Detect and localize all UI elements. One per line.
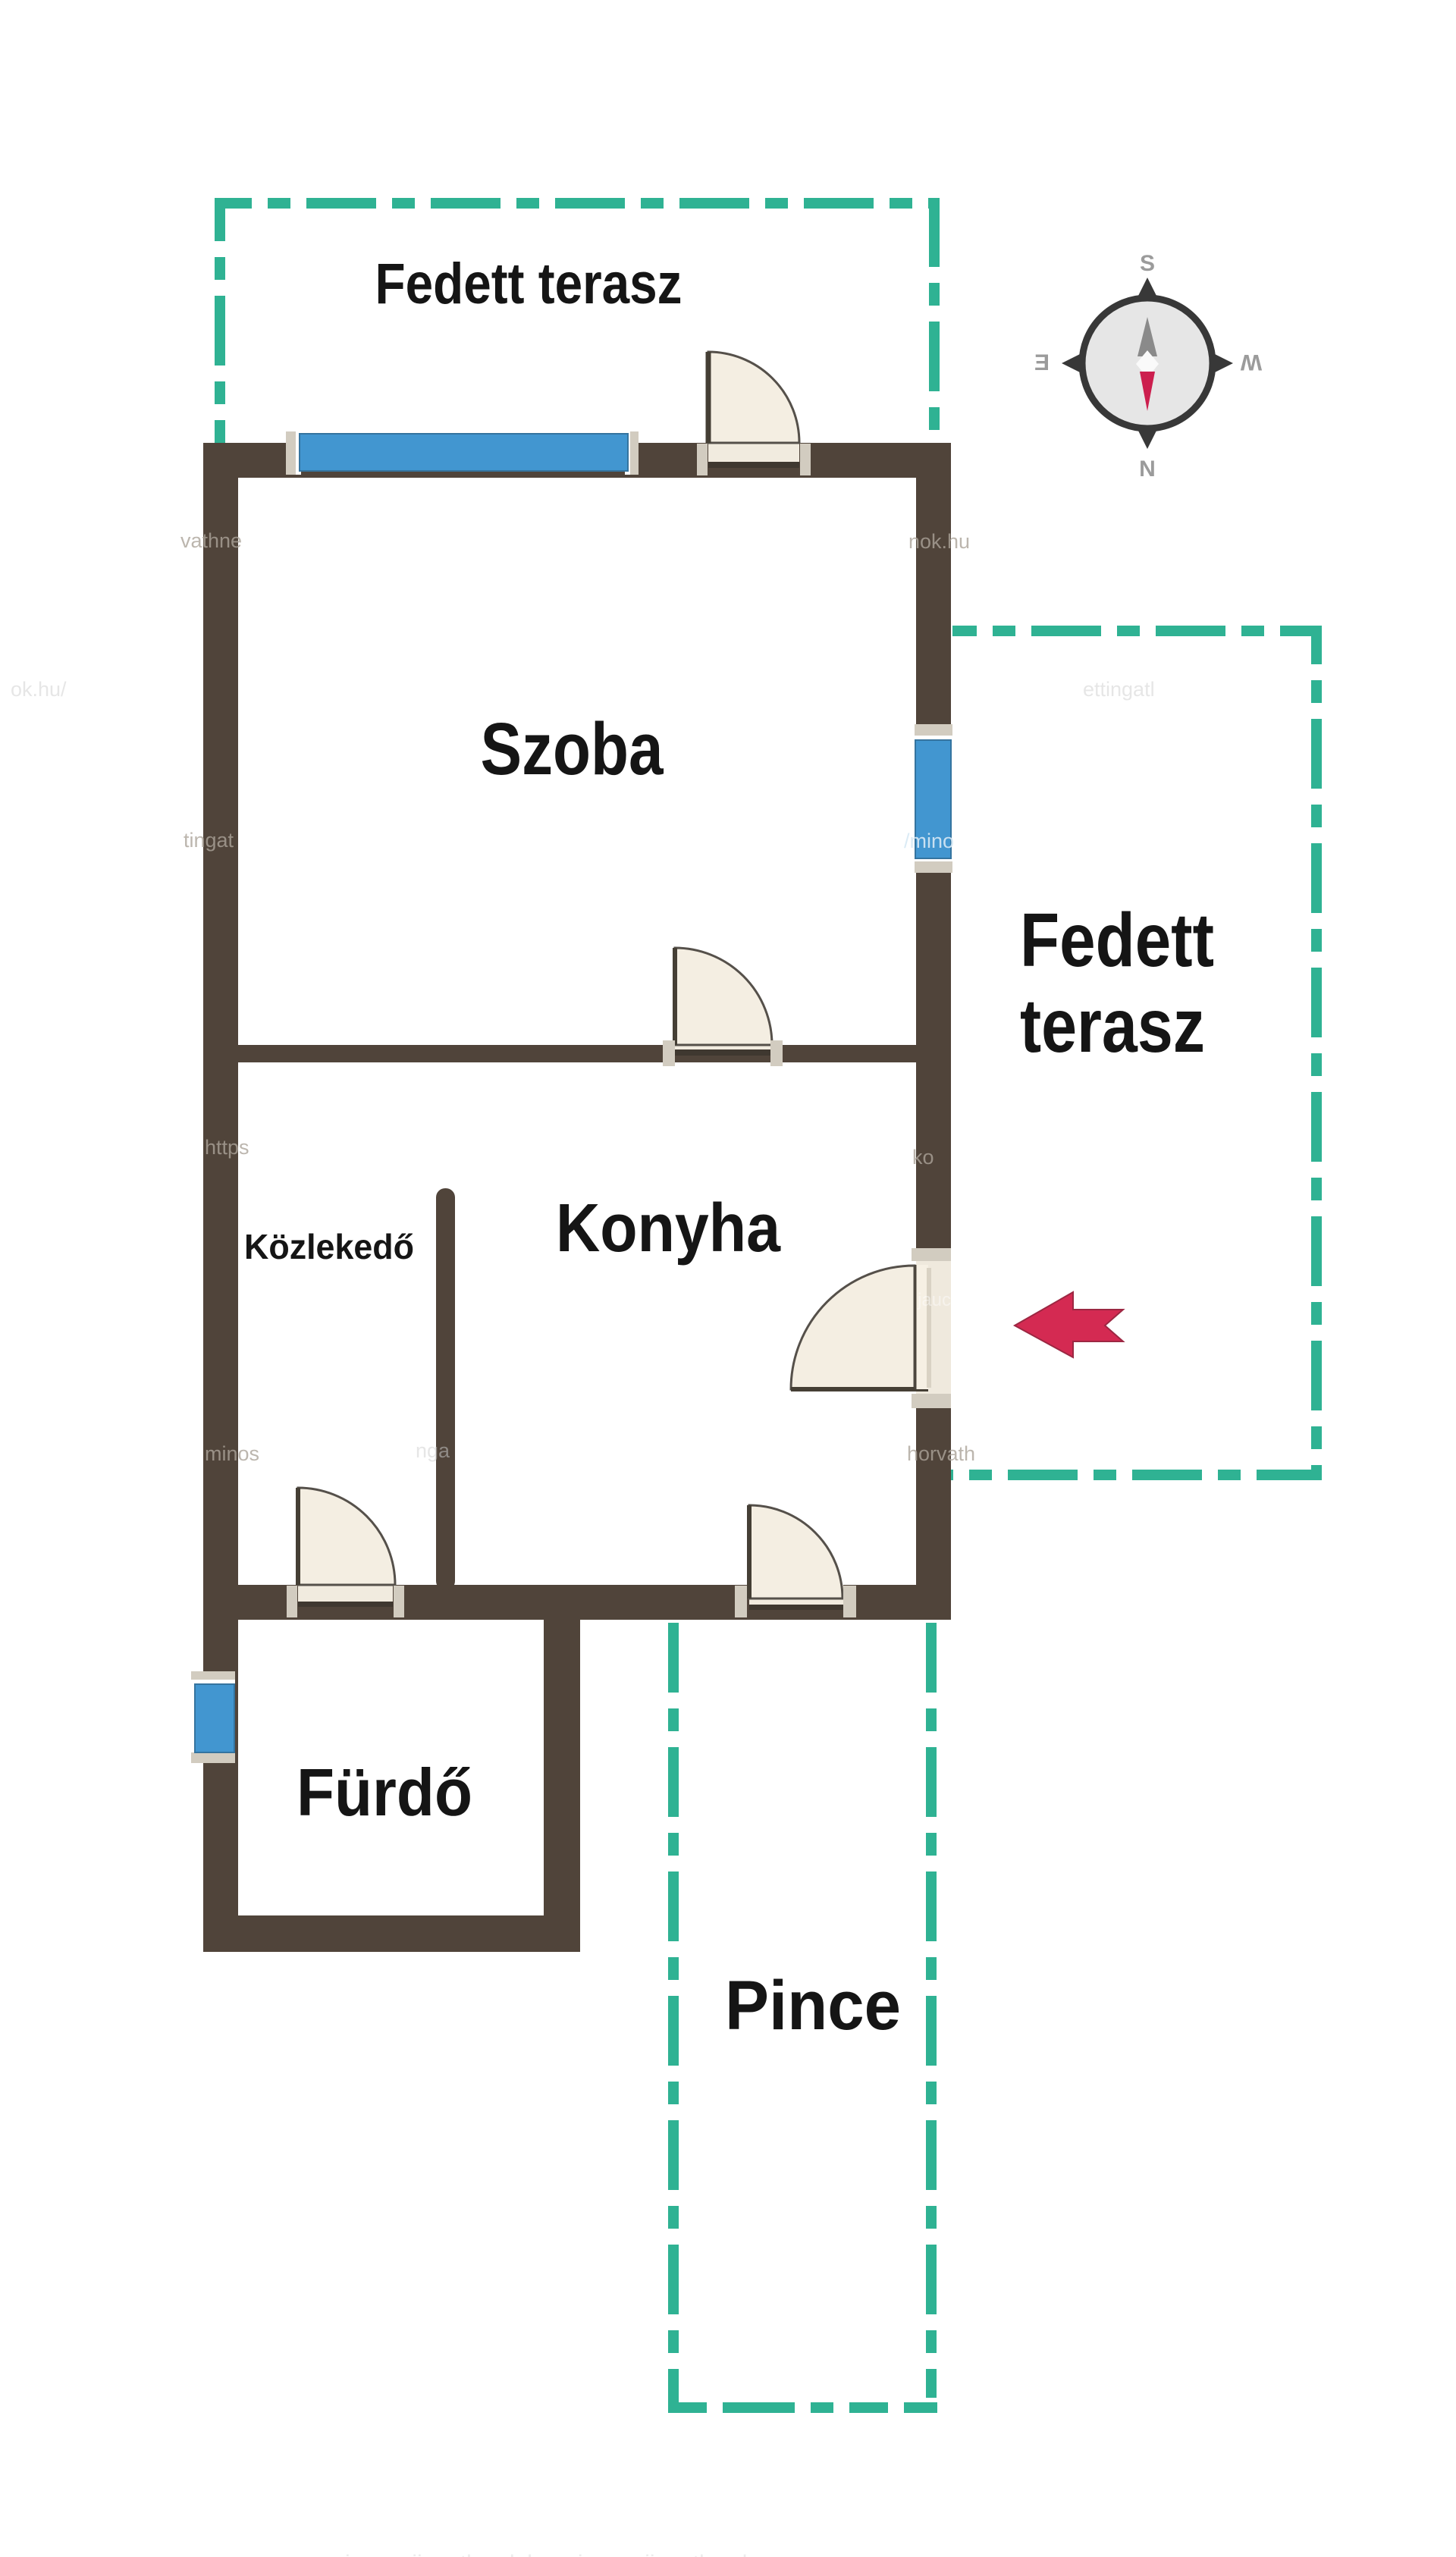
svg-text:horvath: horvath xyxy=(907,1442,975,1465)
svg-text:Fürdő: Fürdő xyxy=(297,1755,472,1830)
svg-text:terasz: terasz xyxy=(1020,984,1205,1068)
svg-text:E: E xyxy=(1034,350,1050,375)
svg-text:minosegiingatlanok.hu minoseg: minosegiingatlanok.hu minosegiingatlanok xyxy=(326,2551,755,2557)
svg-text:Közlekedő: Közlekedő xyxy=(244,1227,414,1266)
svg-text:vathne: vathne xyxy=(180,529,242,552)
svg-text:minos: minos xyxy=(205,1442,259,1465)
svg-text:Fedett: Fedett xyxy=(1020,898,1214,983)
svg-text:ettingatl: ettingatl xyxy=(1083,678,1155,701)
svg-text:Pince: Pince xyxy=(725,1967,901,2044)
svg-text:ko: ko xyxy=(912,1146,934,1169)
svg-text:Szoba: Szoba xyxy=(481,707,664,790)
svg-text:jauch: jauch xyxy=(917,1290,961,1310)
svg-text:W: W xyxy=(1240,350,1262,375)
svg-text:nok.hu: nok.hu xyxy=(908,530,970,553)
svg-text:Konyha: Konyha xyxy=(556,1191,781,1266)
svg-text:N: N xyxy=(1139,456,1156,482)
svg-text:/mino: /mino xyxy=(904,830,954,852)
svg-text:ok.hu/: ok.hu/ xyxy=(11,678,67,701)
svg-text:https: https xyxy=(205,1136,249,1159)
svg-text:S: S xyxy=(1140,251,1155,276)
svg-text:Fedett terasz: Fedett terasz xyxy=(375,252,682,316)
svg-text:tingat: tingat xyxy=(184,829,234,852)
svg-text:nga: nga xyxy=(416,1439,450,1462)
